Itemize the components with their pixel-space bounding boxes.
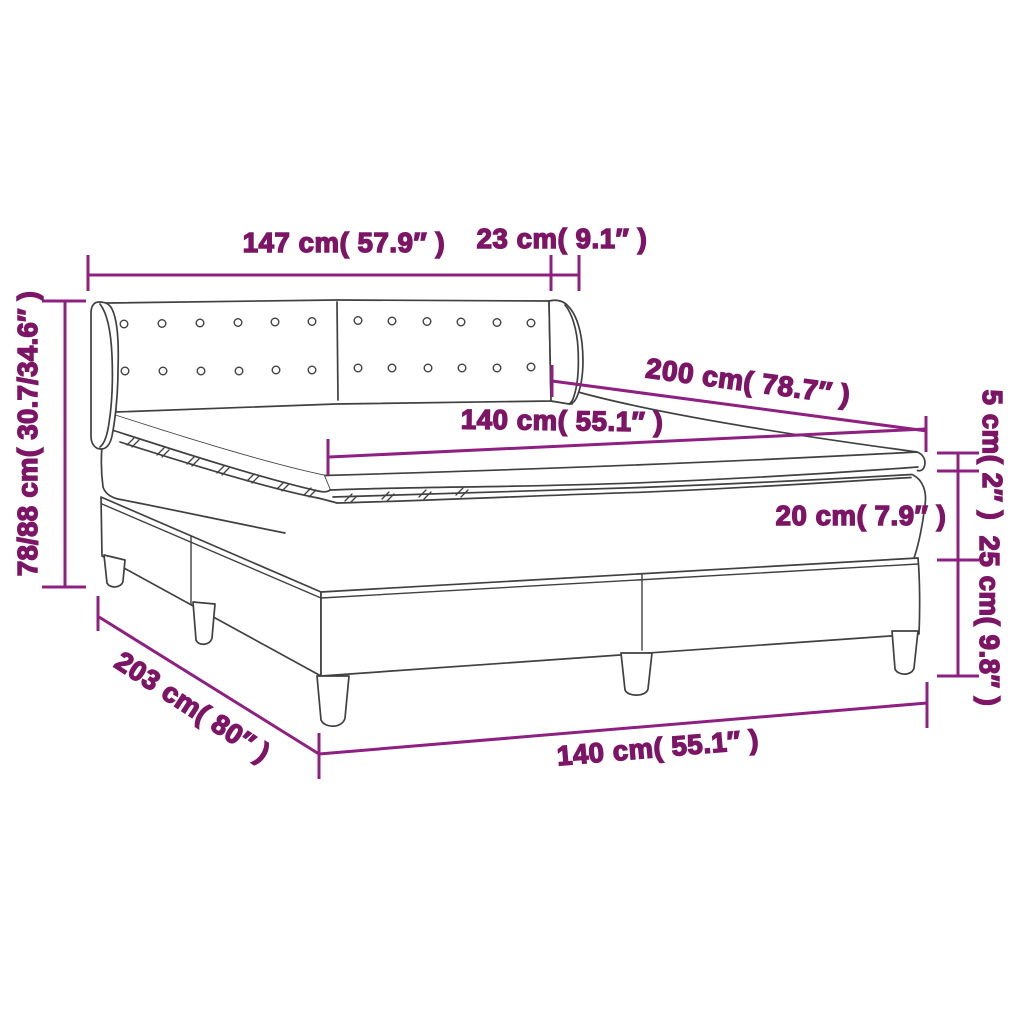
svg-text:25 cm( 9.8″ ): 25 cm( 9.8″ ) (974, 536, 1005, 707)
svg-text:20 cm( 7.9″ ): 20 cm( 7.9″ ) (776, 500, 947, 531)
svg-text:147 cm( 57.9″ ): 147 cm( 57.9″ ) (243, 227, 446, 258)
svg-text:78/88 cm( 30.7/34.6″ ): 78/88 cm( 30.7/34.6″ ) (12, 291, 43, 576)
svg-text:140 cm( 55.1″ ): 140 cm( 55.1″ ) (461, 404, 664, 438)
svg-text:23 cm( 9.1″ ): 23 cm( 9.1″ ) (477, 223, 648, 254)
svg-text:5 cm( 2″ ): 5 cm( 2″ ) (977, 390, 1008, 521)
